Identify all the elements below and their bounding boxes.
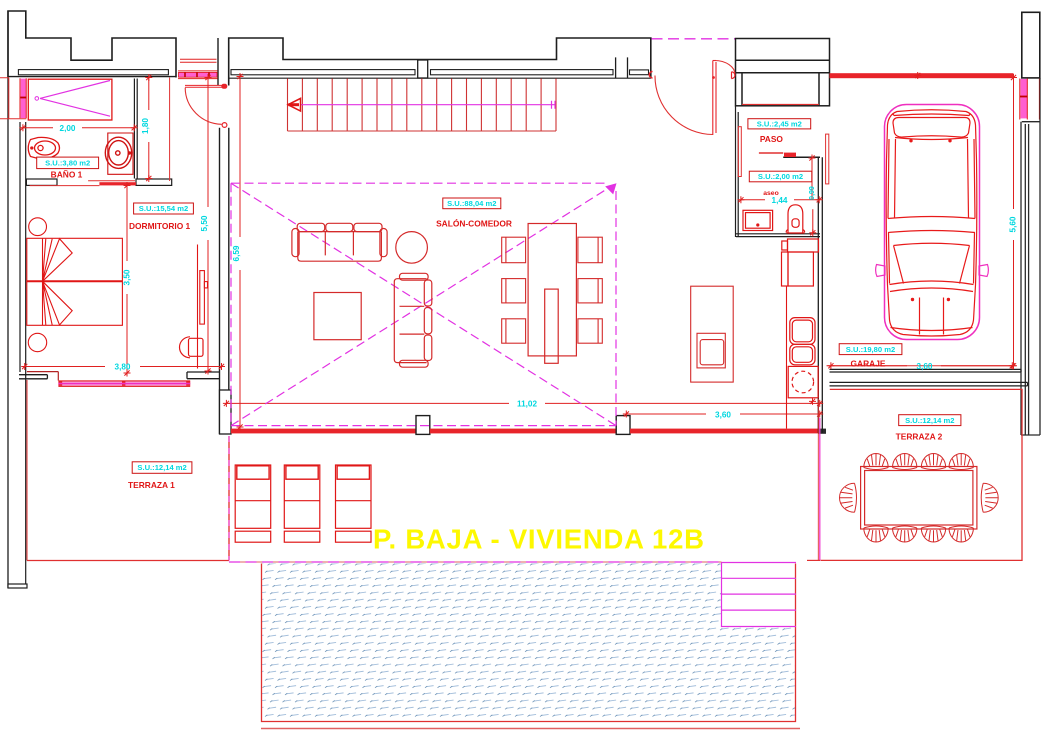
svg-text:DORMITORIO 1: DORMITORIO 1 bbox=[129, 221, 191, 231]
svg-text:2,00: 2,00 bbox=[60, 124, 76, 133]
svg-text:5,60: 5,60 bbox=[1009, 216, 1018, 232]
svg-text:P. BAJA - VIVIENDA 12B: P. BAJA - VIVIENDA 12B bbox=[373, 524, 704, 555]
svg-text:S.U.:3,80 m2: S.U.:3,80 m2 bbox=[45, 159, 90, 168]
svg-text:PASO: PASO bbox=[760, 134, 784, 144]
svg-text:S.U.:2,00 m2: S.U.:2,00 m2 bbox=[758, 172, 803, 181]
svg-text:GARAJE: GARAJE bbox=[851, 359, 886, 369]
svg-text:3,80: 3,80 bbox=[115, 362, 131, 371]
svg-text:3,60: 3,60 bbox=[917, 362, 933, 371]
svg-text:S.U.:15,54 m2: S.U.:15,54 m2 bbox=[139, 204, 188, 213]
svg-text:TERRAZA 2: TERRAZA 2 bbox=[896, 431, 943, 441]
svg-text:3,60: 3,60 bbox=[715, 410, 731, 419]
svg-text:0,99: 0,99 bbox=[809, 186, 816, 200]
svg-text:aseo: aseo bbox=[763, 190, 779, 197]
svg-text:S.U.:19,80 m2: S.U.:19,80 m2 bbox=[846, 345, 895, 354]
svg-text:S.U.:88,04 m2: S.U.:88,04 m2 bbox=[447, 199, 496, 208]
svg-text:5,50: 5,50 bbox=[200, 215, 209, 231]
svg-text:3,50: 3,50 bbox=[123, 269, 132, 285]
svg-text:11,02: 11,02 bbox=[517, 400, 537, 409]
svg-text:BAÑO 1: BAÑO 1 bbox=[51, 170, 83, 180]
svg-text:S.U.:12,14 m2: S.U.:12,14 m2 bbox=[137, 463, 186, 472]
svg-text:S.U.:12,14 m2: S.U.:12,14 m2 bbox=[905, 416, 954, 425]
svg-text:TERRAZA 1: TERRAZA 1 bbox=[128, 480, 175, 490]
svg-text:1,80: 1,80 bbox=[141, 118, 150, 134]
svg-text:S.U.:2,45 m2: S.U.:2,45 m2 bbox=[757, 120, 802, 129]
svg-text:1,44: 1,44 bbox=[772, 196, 788, 205]
svg-text:6,59: 6,59 bbox=[232, 245, 241, 261]
svg-text:SALÓN-COMEDOR: SALÓN-COMEDOR bbox=[436, 217, 512, 228]
